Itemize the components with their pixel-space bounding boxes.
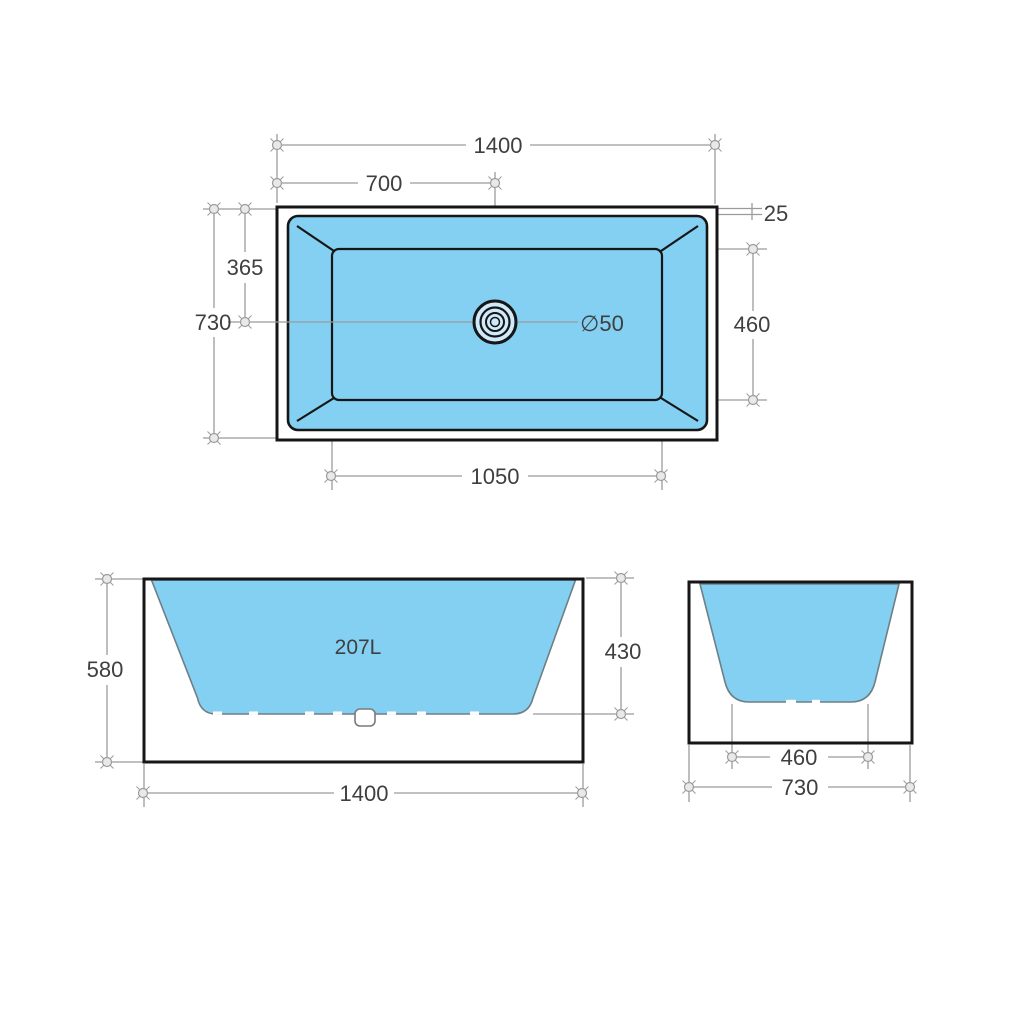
dim-label-overall-height: 580 bbox=[87, 657, 124, 682]
center-mark-icon bbox=[101, 573, 114, 586]
center-mark-icon bbox=[726, 751, 739, 764]
center-mark-icon bbox=[747, 243, 760, 256]
technical-drawing-canvas: 1400 700 25 730 365 460 1050 ∅50 bbox=[0, 0, 1024, 1024]
bottom-dash bbox=[417, 712, 426, 715]
center-mark-icon bbox=[615, 708, 628, 721]
center-mark-icon bbox=[239, 203, 252, 216]
center-mark-icon bbox=[271, 177, 284, 190]
dim-label-rim-width: 25 bbox=[764, 201, 788, 226]
dim-label-drain-offset-width: 365 bbox=[227, 255, 264, 280]
center-mark-icon bbox=[904, 781, 917, 794]
center-mark-icon bbox=[862, 751, 875, 764]
drain-circles bbox=[474, 301, 516, 343]
dim-label-drain-offset-length: 700 bbox=[366, 171, 403, 196]
dim-label-side-base-width: 460 bbox=[781, 745, 818, 770]
center-mark-icon bbox=[655, 470, 668, 483]
front-view: 207L 580 430 1400 bbox=[87, 572, 642, 808]
bottom-dash bbox=[249, 712, 258, 715]
center-mark-icon bbox=[709, 139, 722, 152]
dim-label-front-length: 1400 bbox=[340, 781, 389, 806]
center-mark-icon bbox=[239, 316, 252, 329]
bottom-dash bbox=[213, 712, 222, 715]
center-mark-icon bbox=[615, 572, 628, 585]
center-mark-icon bbox=[683, 781, 696, 794]
dim-label-base-width: 460 bbox=[734, 312, 771, 337]
center-mark-icon bbox=[325, 470, 338, 483]
bottom-dash bbox=[333, 712, 342, 715]
bottom-dash bbox=[812, 700, 820, 703]
dim-label-base-length: 1050 bbox=[471, 464, 520, 489]
dim-label-drain-diameter: ∅50 bbox=[580, 311, 624, 336]
bottom-dash bbox=[470, 712, 479, 715]
bathtub-drawing-svg: 1400 700 25 730 365 460 1050 ∅50 bbox=[0, 0, 1024, 1024]
bottom-dash bbox=[786, 700, 796, 703]
dim-label-inner-depth: 430 bbox=[605, 639, 642, 664]
capacity-label: 207L bbox=[335, 636, 382, 659]
bottom-dash bbox=[387, 712, 396, 715]
dim-label-overall-length: 1400 bbox=[474, 133, 523, 158]
drain-outlet-front bbox=[355, 709, 375, 726]
center-mark-icon bbox=[489, 177, 502, 190]
center-mark-icon bbox=[576, 787, 589, 800]
center-mark-icon bbox=[101, 756, 114, 769]
dim-label-overall-width: 730 bbox=[195, 310, 232, 335]
center-mark-icon bbox=[271, 139, 284, 152]
center-mark-icon bbox=[208, 203, 221, 216]
top-view: 1400 700 25 730 365 460 1050 ∅50 bbox=[195, 133, 789, 490]
side-view: 460 730 bbox=[683, 582, 917, 802]
center-mark-icon bbox=[137, 787, 150, 800]
center-mark-icon bbox=[747, 394, 760, 407]
water-section-side bbox=[700, 584, 899, 702]
center-mark-icon bbox=[208, 432, 221, 445]
bottom-dash bbox=[305, 712, 314, 715]
dim-label-side-width: 730 bbox=[782, 775, 819, 800]
